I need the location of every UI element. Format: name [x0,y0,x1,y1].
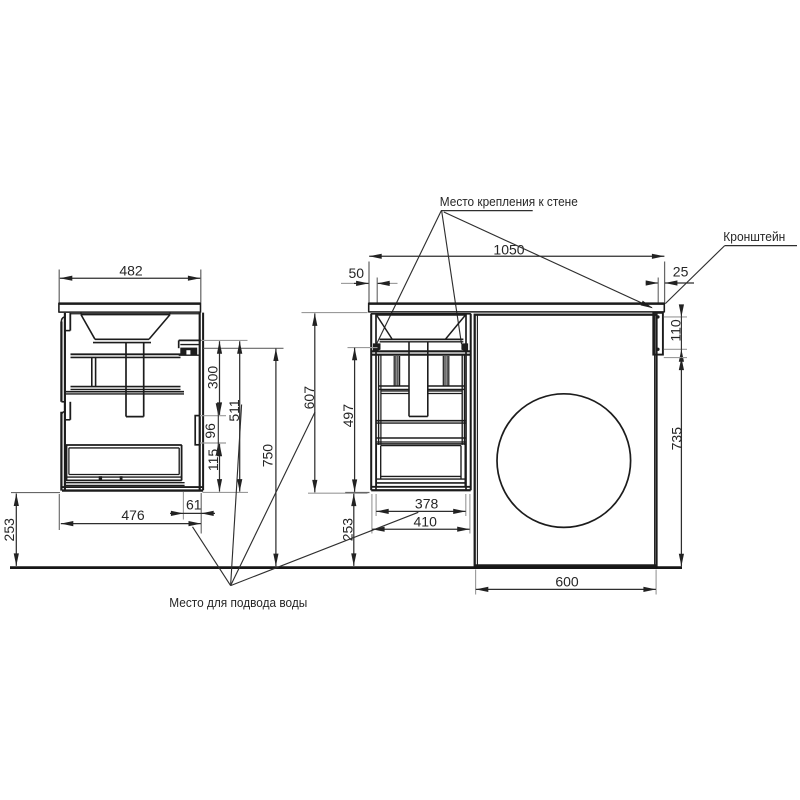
svg-text:607: 607 [301,386,317,410]
svg-text:497: 497 [340,404,356,428]
svg-text:1050: 1050 [493,242,524,258]
svg-text:476: 476 [121,507,145,523]
svg-text:50: 50 [349,265,365,281]
svg-text:110: 110 [667,319,683,342]
svg-text:735: 735 [669,427,685,451]
svg-text:115: 115 [205,449,221,472]
svg-text:253: 253 [1,518,17,542]
svg-text:482: 482 [119,263,143,279]
svg-text:300: 300 [204,366,220,390]
svg-text:96: 96 [202,423,218,439]
svg-text:511: 511 [226,399,242,422]
svg-text:Место для подвода воды: Место для подвода воды [169,595,307,610]
svg-text:25: 25 [673,263,689,279]
svg-text:Место крепления к стене: Место крепления к стене [440,194,578,209]
svg-text:61: 61 [186,497,202,513]
svg-text:Кронштейн: Кронштейн [723,229,785,244]
svg-text:410: 410 [414,514,438,530]
svg-text:378: 378 [415,496,439,512]
svg-text:600: 600 [555,573,579,589]
svg-text:750: 750 [260,444,276,468]
